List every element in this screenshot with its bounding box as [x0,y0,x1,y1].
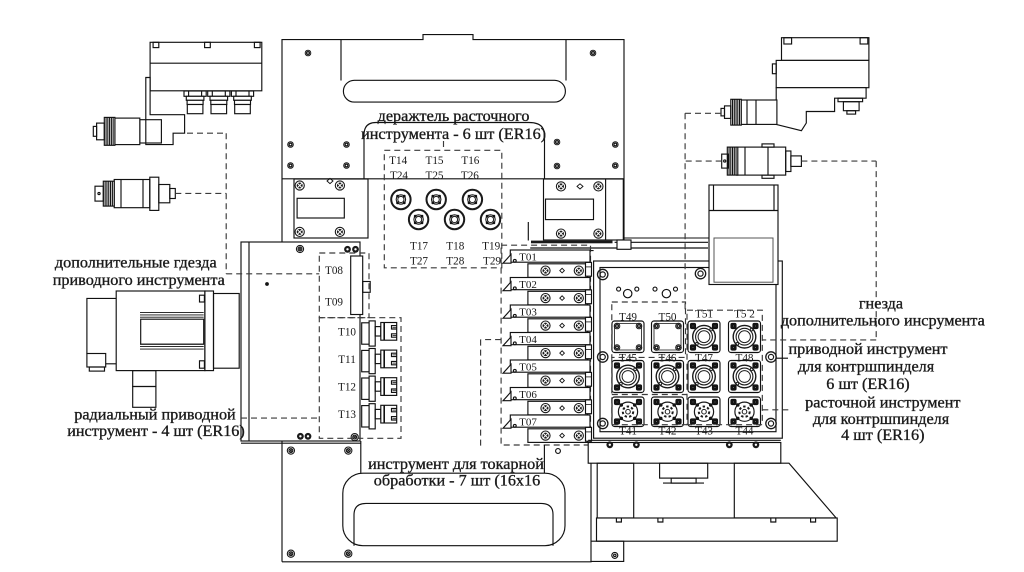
svg-text:T06: T06 [519,389,537,401]
svg-text:T17: T17 [410,241,428,253]
svg-text:T24: T24 [390,170,408,182]
svg-text:обработки - 7 шт (16х16: обработки - 7 шт (16х16 [374,472,540,490]
svg-text:T48: T48 [735,353,753,365]
svg-text:T46: T46 [658,353,676,365]
svg-text:T25: T25 [425,170,443,182]
svg-text:дополнительные гдезда: дополнительные гдезда [55,253,217,271]
svg-text:T01: T01 [519,251,537,263]
svg-text:T29: T29 [483,255,501,267]
svg-text:T47: T47 [695,353,713,365]
svg-text:T04: T04 [519,334,537,346]
svg-text:T41: T41 [619,426,637,438]
svg-text:T19: T19 [482,241,500,253]
svg-text:приводного инструмента: приводного инструмента [53,271,225,289]
svg-text:T27: T27 [410,255,428,267]
svg-text:T45: T45 [619,353,637,365]
svg-text:T50: T50 [658,311,676,323]
svg-text:T10: T10 [338,327,356,339]
svg-text:T16: T16 [461,155,479,167]
svg-text:инструмент - 4 шт (ER16): инструмент - 4 шт (ER16) [67,422,245,440]
svg-text:T02: T02 [519,279,537,291]
svg-text:T13: T13 [338,409,356,421]
svg-text:дополнительного инсрумента: дополнительного инсрумента [781,312,985,330]
svg-text:T11: T11 [338,354,356,366]
svg-text:T42: T42 [658,426,676,438]
svg-text:T08: T08 [325,265,343,277]
svg-text:T07: T07 [519,416,537,428]
svg-text:4 шт (ER16): 4 шт (ER16) [841,426,924,444]
svg-text:T28: T28 [446,255,464,267]
svg-text:для контршпинделя: для контршпинделя [798,358,935,376]
svg-text:T15: T15 [425,155,443,167]
svg-text:T14: T14 [389,155,407,167]
svg-text:T18: T18 [446,241,464,253]
svg-text:T43: T43 [695,426,713,438]
svg-text:T26: T26 [461,170,479,182]
svg-text:гнезда: гнезда [859,295,903,313]
svg-text:T12: T12 [338,382,356,394]
svg-text:T05: T05 [519,361,537,373]
svg-text:радиальный приводной: радиальный приводной [74,406,236,424]
svg-text:расточной инструмент: расточной инструмент [805,393,960,411]
svg-text:инструмента - 6 шт (ER16): инструмента - 6 шт (ER16) [361,125,546,143]
svg-text:T03: T03 [519,306,537,318]
svg-text:T09: T09 [325,297,343,309]
svg-text:T44: T44 [735,426,753,438]
svg-text:6 шт (ER16): 6 шт (ER16) [826,375,909,393]
svg-text:приводной инструмент: приводной инструмент [789,340,948,358]
svg-text:инструмент для токарной: инструмент для токарной [368,455,544,473]
svg-text:T49: T49 [619,311,637,323]
svg-text:деражтель расточного: деражтель расточного [378,107,530,125]
